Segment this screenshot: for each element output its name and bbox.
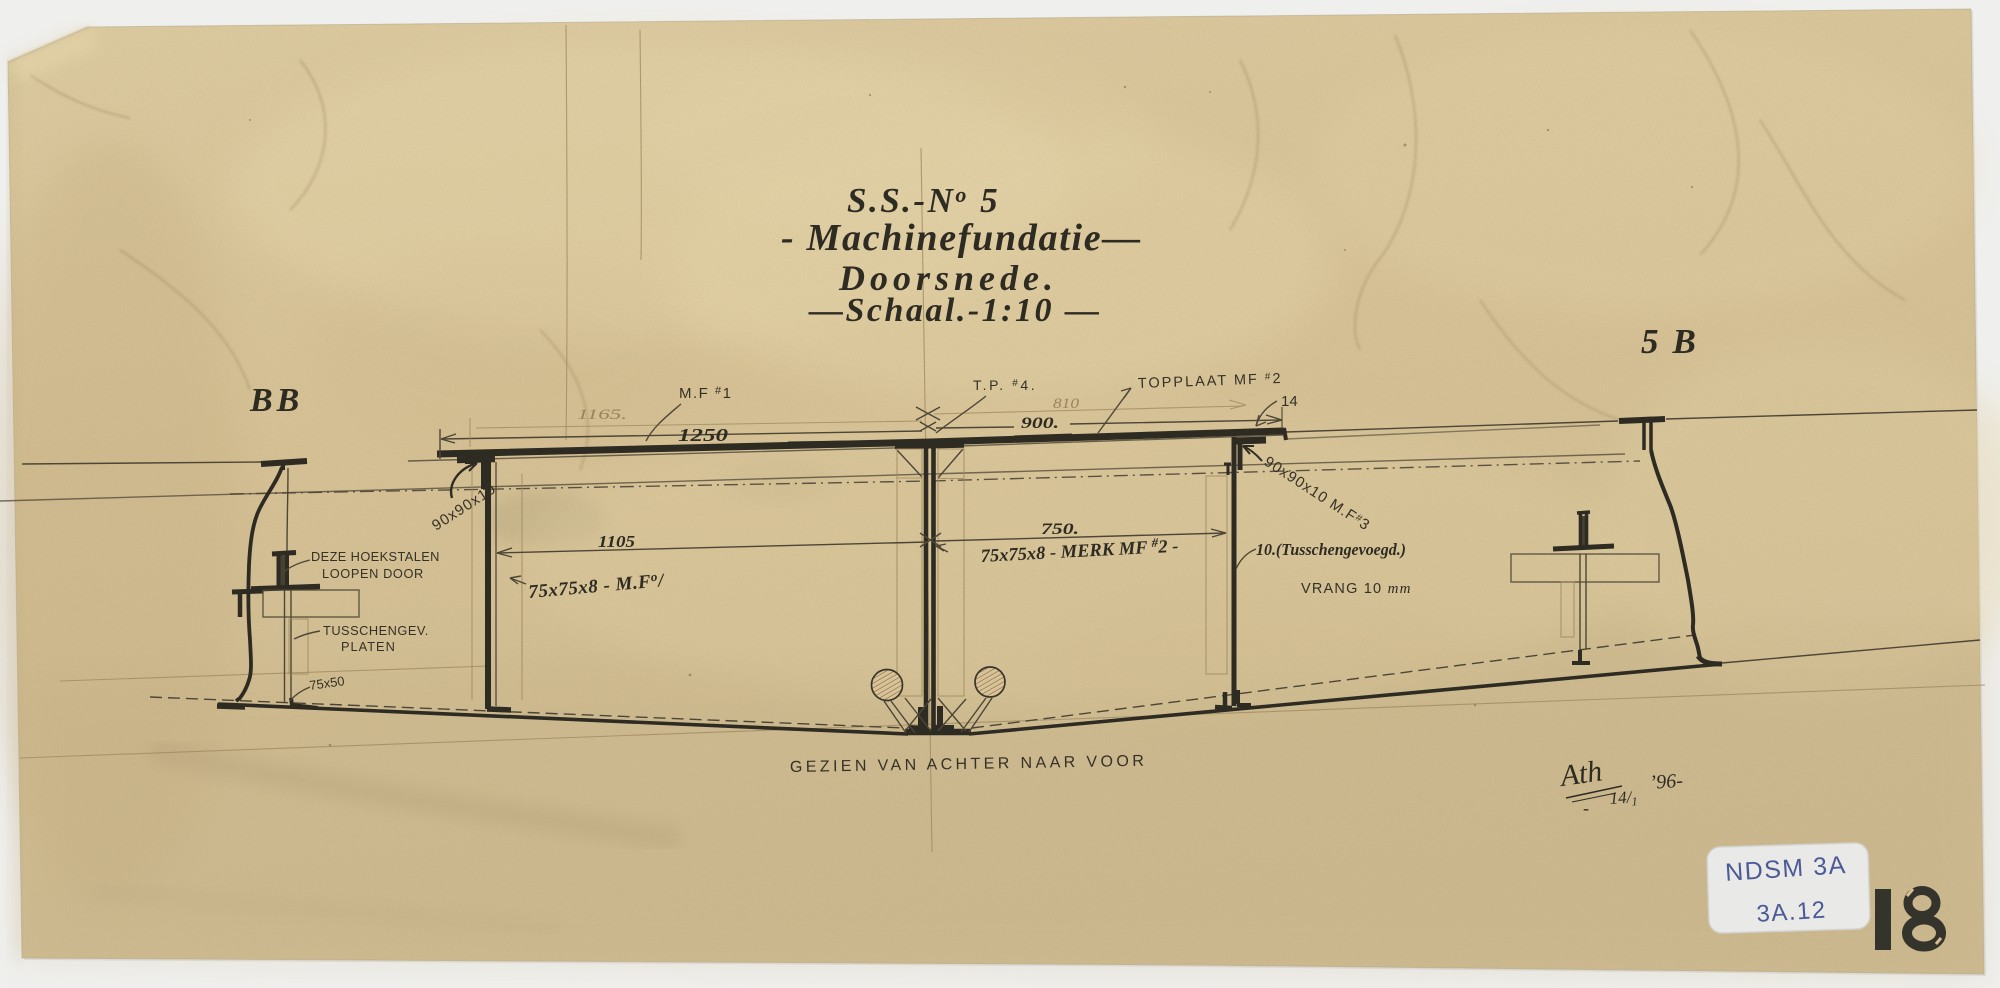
svg-text:3A.12: 3A.12: [1756, 896, 1828, 927]
svg-text:—Schaal.-1:10 —: —Schaal.-1:10 —: [808, 292, 1102, 329]
svg-text:DEZE HOEKSTALEN: DEZE HOEKSTALEN: [311, 549, 440, 564]
svg-text:810: 810: [1053, 396, 1080, 412]
svg-text:S.S.-No 5: S.S.-No 5: [847, 181, 1000, 220]
svg-text:14: 14: [1281, 393, 1298, 410]
svg-text:5B: 5B: [1641, 322, 1710, 361]
svg-text:1105: 1105: [598, 532, 636, 551]
svg-text:-: -: [1583, 798, 1589, 818]
svg-text:BB: BB: [249, 382, 303, 419]
svg-text:TUSSCHENGEV.: TUSSCHENGEV.: [323, 623, 429, 638]
svg-text:’96-: ’96-: [1649, 770, 1684, 794]
svg-text:PLATEN: PLATEN: [341, 639, 396, 654]
svg-text:10.(Tusschengevoegd.): 10.(Tusschengevoegd.): [1256, 540, 1406, 559]
svg-text:750.: 750.: [1041, 521, 1079, 538]
svg-text:900.: 900.: [1021, 415, 1059, 432]
svg-text:T.P. #4.: T.P. #4.: [973, 377, 1037, 393]
svg-text:M.F #1: M.F #1: [679, 385, 732, 402]
svg-text:VRANG 10 mm: VRANG 10 mm: [1301, 581, 1412, 597]
svg-text:- Machinefundatie—: - Machinefundatie—: [781, 217, 1142, 259]
svg-text:1250: 1250: [678, 425, 728, 445]
svg-text:Ath: Ath: [1556, 754, 1604, 793]
svg-text:1165.: 1165.: [577, 407, 627, 423]
svg-text:LOOPEN DOOR: LOOPEN DOOR: [322, 566, 424, 581]
